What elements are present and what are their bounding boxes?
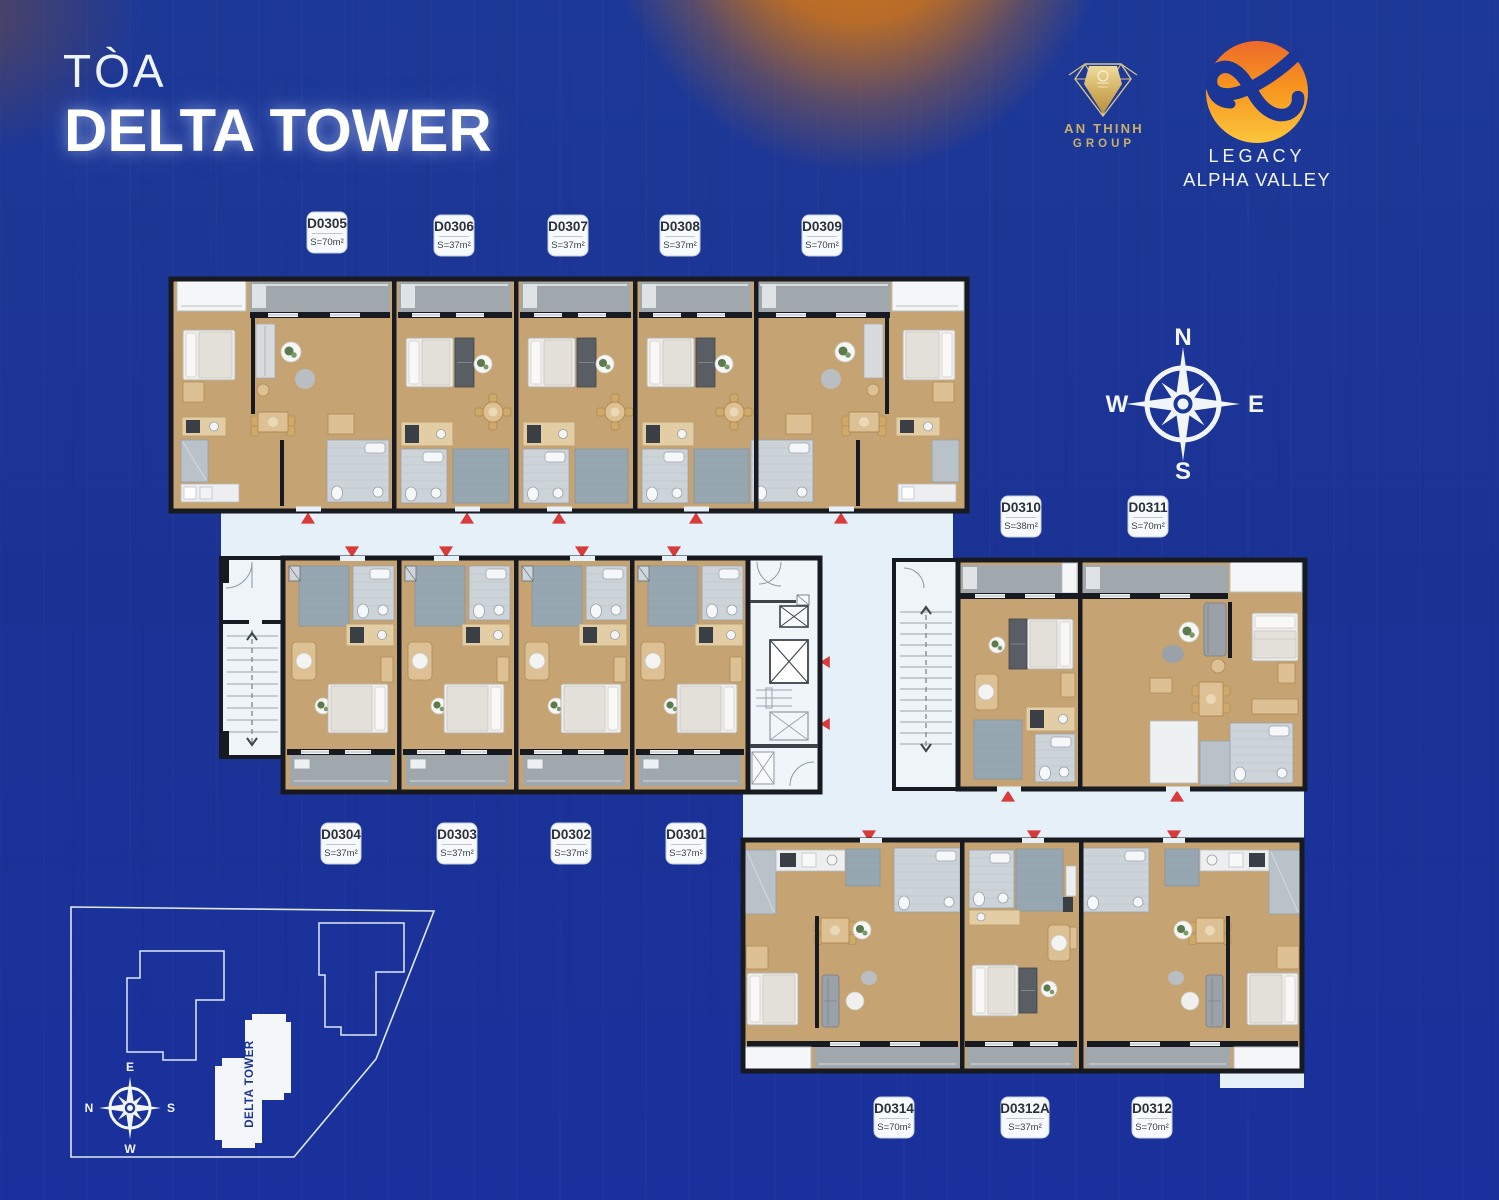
svg-text:AN THINH: AN THINH bbox=[1064, 121, 1144, 136]
svg-text:D0306: D0306 bbox=[434, 219, 474, 234]
svg-text:S=70m²: S=70m² bbox=[310, 237, 344, 248]
svg-text:S=37m²: S=37m² bbox=[669, 848, 703, 859]
svg-text:ALPHA VALLEY: ALPHA VALLEY bbox=[1183, 169, 1331, 190]
svg-text:D0308: D0308 bbox=[660, 219, 700, 234]
svg-text:S: S bbox=[167, 1101, 175, 1115]
svg-text:D0312A: D0312A bbox=[1000, 1101, 1050, 1116]
svg-text:D0301: D0301 bbox=[666, 827, 706, 842]
svg-text:W: W bbox=[124, 1142, 136, 1156]
svg-text:DELTA TOWER: DELTA TOWER bbox=[244, 1040, 256, 1128]
svg-text:S=38m²: S=38m² bbox=[1004, 521, 1038, 532]
svg-text:S=70m²: S=70m² bbox=[1131, 521, 1165, 532]
svg-text:W: W bbox=[1106, 391, 1129, 418]
svg-text:S=37m²: S=37m² bbox=[554, 848, 588, 859]
svg-text:S=37m²: S=37m² bbox=[437, 240, 471, 251]
svg-text:D0302: D0302 bbox=[551, 827, 591, 842]
svg-text:D0303: D0303 bbox=[437, 827, 477, 842]
svg-text:D0312: D0312 bbox=[1132, 1101, 1172, 1116]
svg-text:S: S bbox=[1175, 458, 1191, 485]
svg-text:LEGACY: LEGACY bbox=[1208, 146, 1305, 166]
svg-text:S=70m²: S=70m² bbox=[1135, 1122, 1169, 1133]
svg-text:D0309: D0309 bbox=[802, 219, 842, 234]
svg-text:D0311: D0311 bbox=[1128, 500, 1168, 515]
svg-text:E: E bbox=[126, 1060, 134, 1074]
svg-text:D0310: D0310 bbox=[1001, 500, 1041, 515]
svg-text:D0307: D0307 bbox=[548, 219, 588, 234]
svg-text:D0305: D0305 bbox=[307, 216, 347, 231]
svg-text:N: N bbox=[85, 1101, 94, 1115]
svg-text:S=37m²: S=37m² bbox=[440, 848, 474, 859]
svg-text:S=70m²: S=70m² bbox=[805, 240, 839, 251]
svg-text:N: N bbox=[1174, 324, 1191, 351]
svg-text:S=37m²: S=37m² bbox=[663, 240, 697, 251]
svg-text:GROUP: GROUP bbox=[1073, 138, 1135, 150]
svg-text:D0304: D0304 bbox=[321, 827, 361, 842]
svg-text:S=37m²: S=37m² bbox=[1008, 1122, 1042, 1133]
svg-text:S=37m²: S=37m² bbox=[551, 240, 585, 251]
svg-text:D0314: D0314 bbox=[874, 1101, 914, 1116]
svg-text:S=37m²: S=37m² bbox=[324, 848, 358, 859]
svg-text:S=70m²: S=70m² bbox=[877, 1122, 911, 1133]
svg-text:E: E bbox=[1248, 391, 1264, 418]
